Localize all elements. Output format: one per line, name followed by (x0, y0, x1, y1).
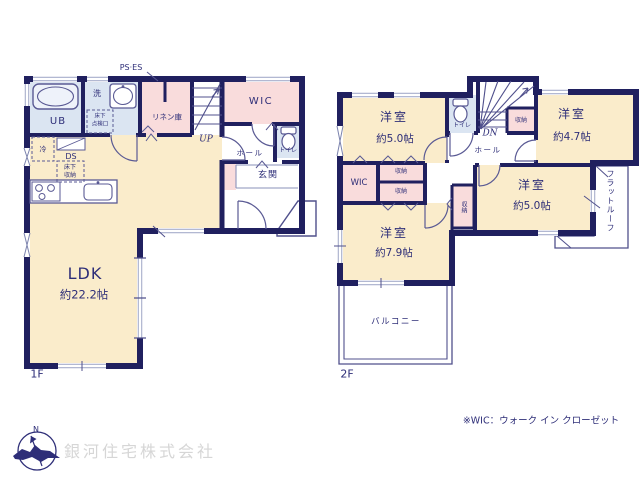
floor2-label: 2F (340, 369, 353, 380)
floorplan-page: PS·ES UB 洗 床下 点検口 冷 DS 床下 収納 リネン庫 UP WIC… (0, 0, 640, 480)
ps-es-label: PS·ES (120, 64, 143, 72)
floorplan-canvas (0, 0, 640, 480)
kitchen-counter (30, 180, 117, 203)
wic-2f-label: WIC (351, 179, 368, 188)
room-sw-size-label: 約7.9帖 (375, 248, 413, 259)
ldk-name-label: LDK (68, 266, 103, 282)
hall-1f-label: ホール (237, 149, 264, 157)
room-nw-size-label: 約5.0帖 (376, 134, 414, 145)
room-e-name-label: 洋室 (518, 179, 546, 191)
stair-closet-label: 収納 (515, 118, 527, 124)
closet-a-label: 収納 (395, 169, 407, 175)
duct-space (57, 138, 85, 150)
duct-label: DS (65, 153, 76, 161)
compass-north-label: N (33, 426, 39, 434)
ldk-size-label: 約22.2帖 (60, 289, 109, 301)
company-name: 銀河住宅株式会社 (64, 444, 216, 460)
wic-1f-label: WIC (249, 97, 273, 107)
floor1-label: 1F (30, 369, 43, 380)
inspection-hatch-label: 点検口 (92, 122, 109, 128)
washbasin (110, 84, 136, 108)
wic-note: ※WIC：ウォーク イン クローゼット (463, 416, 619, 426)
ldk-floor (27, 135, 222, 366)
linen-closet-label: リネン庫 (152, 113, 182, 121)
floor1-room-fills (27, 79, 302, 366)
bath-label: UB (50, 117, 66, 127)
bathtub (33, 84, 78, 109)
room-ne-size-label: 約4.7帖 (553, 132, 591, 143)
closet-c-label: 収納 (460, 201, 466, 213)
room-e-size-label: 約5.0帖 (513, 201, 551, 212)
room-sw-name-label: 洋室 (380, 227, 408, 239)
inspection-hatch-label: 床下 (94, 114, 105, 120)
toilet-2f-label: トイレ (453, 123, 471, 129)
stairs-up-label: UP (199, 136, 213, 145)
stairs-dn-label: DN (482, 130, 497, 139)
room-ne-name-label: 洋室 (558, 108, 586, 120)
underfloor-storage-label: 収納 (64, 173, 76, 179)
compass-icon (13, 432, 60, 470)
toilet-2f (453, 99, 468, 122)
entrance-label: 玄関 (258, 172, 278, 181)
closet-b-label: 収納 (395, 189, 407, 195)
fridge-label: 冷 (40, 147, 47, 154)
hall-2f-label: ホール (475, 146, 502, 154)
toilet-1f-label: トイレ (279, 148, 297, 154)
stairs-1f (192, 84, 222, 130)
room-nw-name-label: 洋室 (380, 111, 408, 123)
underfloor-storage-label: 床下 (64, 165, 76, 171)
wash-label: 洗 (93, 90, 101, 98)
flat-roof-label: フラットルーフ (606, 170, 614, 233)
balcony-label: バルコニー (371, 318, 421, 327)
